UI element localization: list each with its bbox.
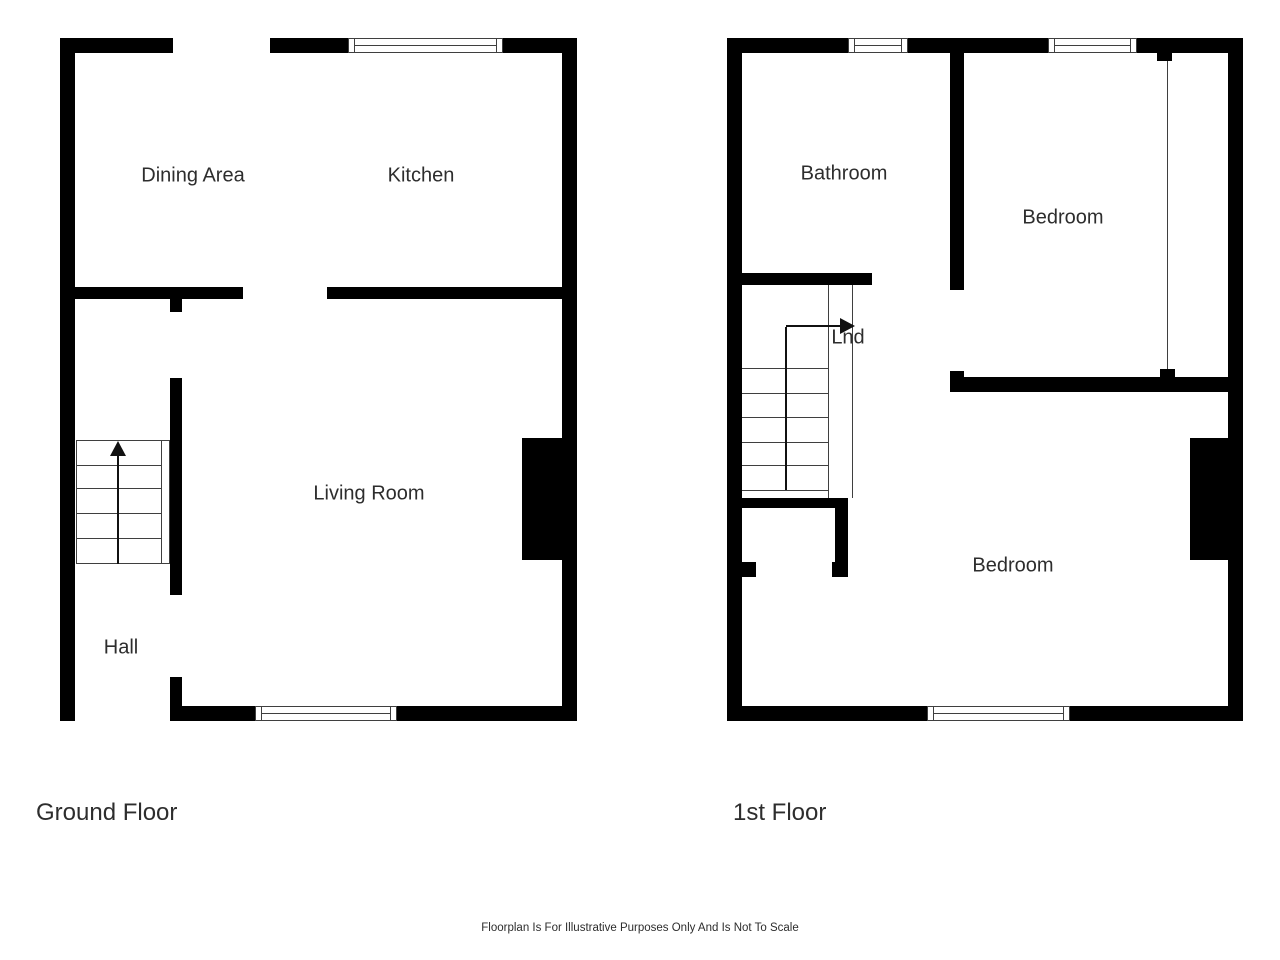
disclaimer-text: Floorplan Is For Illustrative Purposes O… [0, 922, 1280, 934]
window [348, 38, 503, 53]
interior-wall [75, 287, 243, 299]
room-label-bedroom-2: Bedroom [972, 555, 1053, 578]
window [848, 38, 908, 53]
exterior-wall-bottom [397, 706, 577, 721]
stairs-direction-line [785, 327, 787, 490]
exterior-wall-top [908, 38, 1048, 53]
wall-stub [1157, 53, 1172, 61]
window [255, 706, 397, 721]
interior-wall [950, 53, 964, 290]
stair-stringer-line [161, 440, 162, 564]
room-label-bedroom-1: Bedroom [1022, 207, 1103, 230]
wall-stub [1160, 369, 1175, 377]
interior-wall [327, 287, 562, 299]
stair-tread [77, 513, 161, 514]
room-label-hall: Hall [104, 637, 138, 660]
exterior-wall-top [60, 38, 173, 53]
stair-tread [77, 465, 161, 466]
chimney-breast [1190, 438, 1228, 560]
exterior-wall-bottom [1070, 706, 1243, 721]
exterior-wall-left [727, 38, 742, 721]
interior-wall [170, 677, 182, 706]
exterior-wall-bottom [170, 706, 255, 721]
floor-title-ground: Ground Floor [36, 799, 177, 827]
room-label-kitchen: Kitchen [388, 165, 455, 188]
stair-tread [742, 490, 828, 491]
chimney-breast [522, 438, 562, 560]
floorplan-canvas: Dining Area Kitchen Living Room Hall Gro… [0, 0, 1280, 960]
interior-wall [742, 273, 872, 285]
recess-divider-line [1167, 61, 1168, 369]
interior-wall [170, 299, 182, 312]
wall-stub [742, 562, 756, 577]
interior-wall [950, 377, 1243, 392]
stair-tread [77, 538, 161, 539]
interior-wall [742, 498, 848, 508]
exterior-wall-left [60, 38, 75, 721]
wall-stub [832, 562, 848, 577]
stairwell-rail-line [828, 285, 829, 498]
window [1048, 38, 1137, 53]
stairs-up-arrow-icon [110, 441, 126, 456]
stairs-direction-line [117, 449, 119, 564]
room-label-landing: Lnd [831, 327, 864, 350]
exterior-wall-top [270, 38, 348, 53]
interior-wall [170, 378, 182, 595]
stair-tread [77, 488, 161, 489]
staircase [76, 440, 170, 564]
exterior-wall-bottom [727, 706, 927, 721]
exterior-wall-right [562, 38, 577, 721]
floor-title-first: 1st Floor [733, 799, 826, 827]
window [927, 706, 1070, 721]
room-label-living-room: Living Room [313, 483, 424, 506]
stairwell-rail-line [852, 285, 853, 498]
room-label-bathroom: Bathroom [801, 163, 888, 186]
exterior-wall-top [727, 38, 848, 53]
room-label-dining-area: Dining Area [141, 165, 244, 188]
